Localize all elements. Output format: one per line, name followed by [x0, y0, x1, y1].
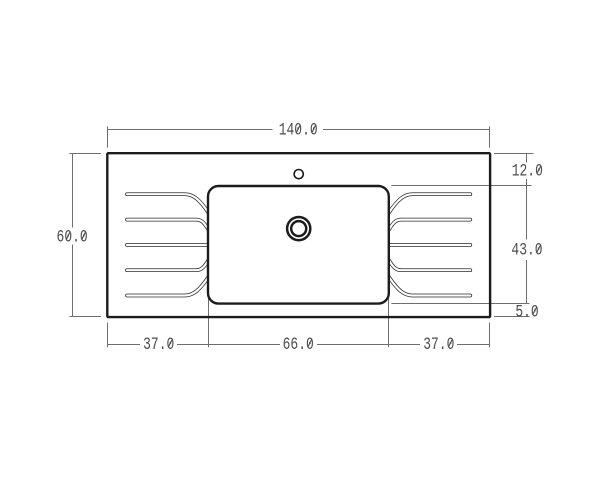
svg-text:140.0: 140.0: [279, 120, 318, 140]
svg-text:5.0: 5.0: [515, 302, 538, 322]
